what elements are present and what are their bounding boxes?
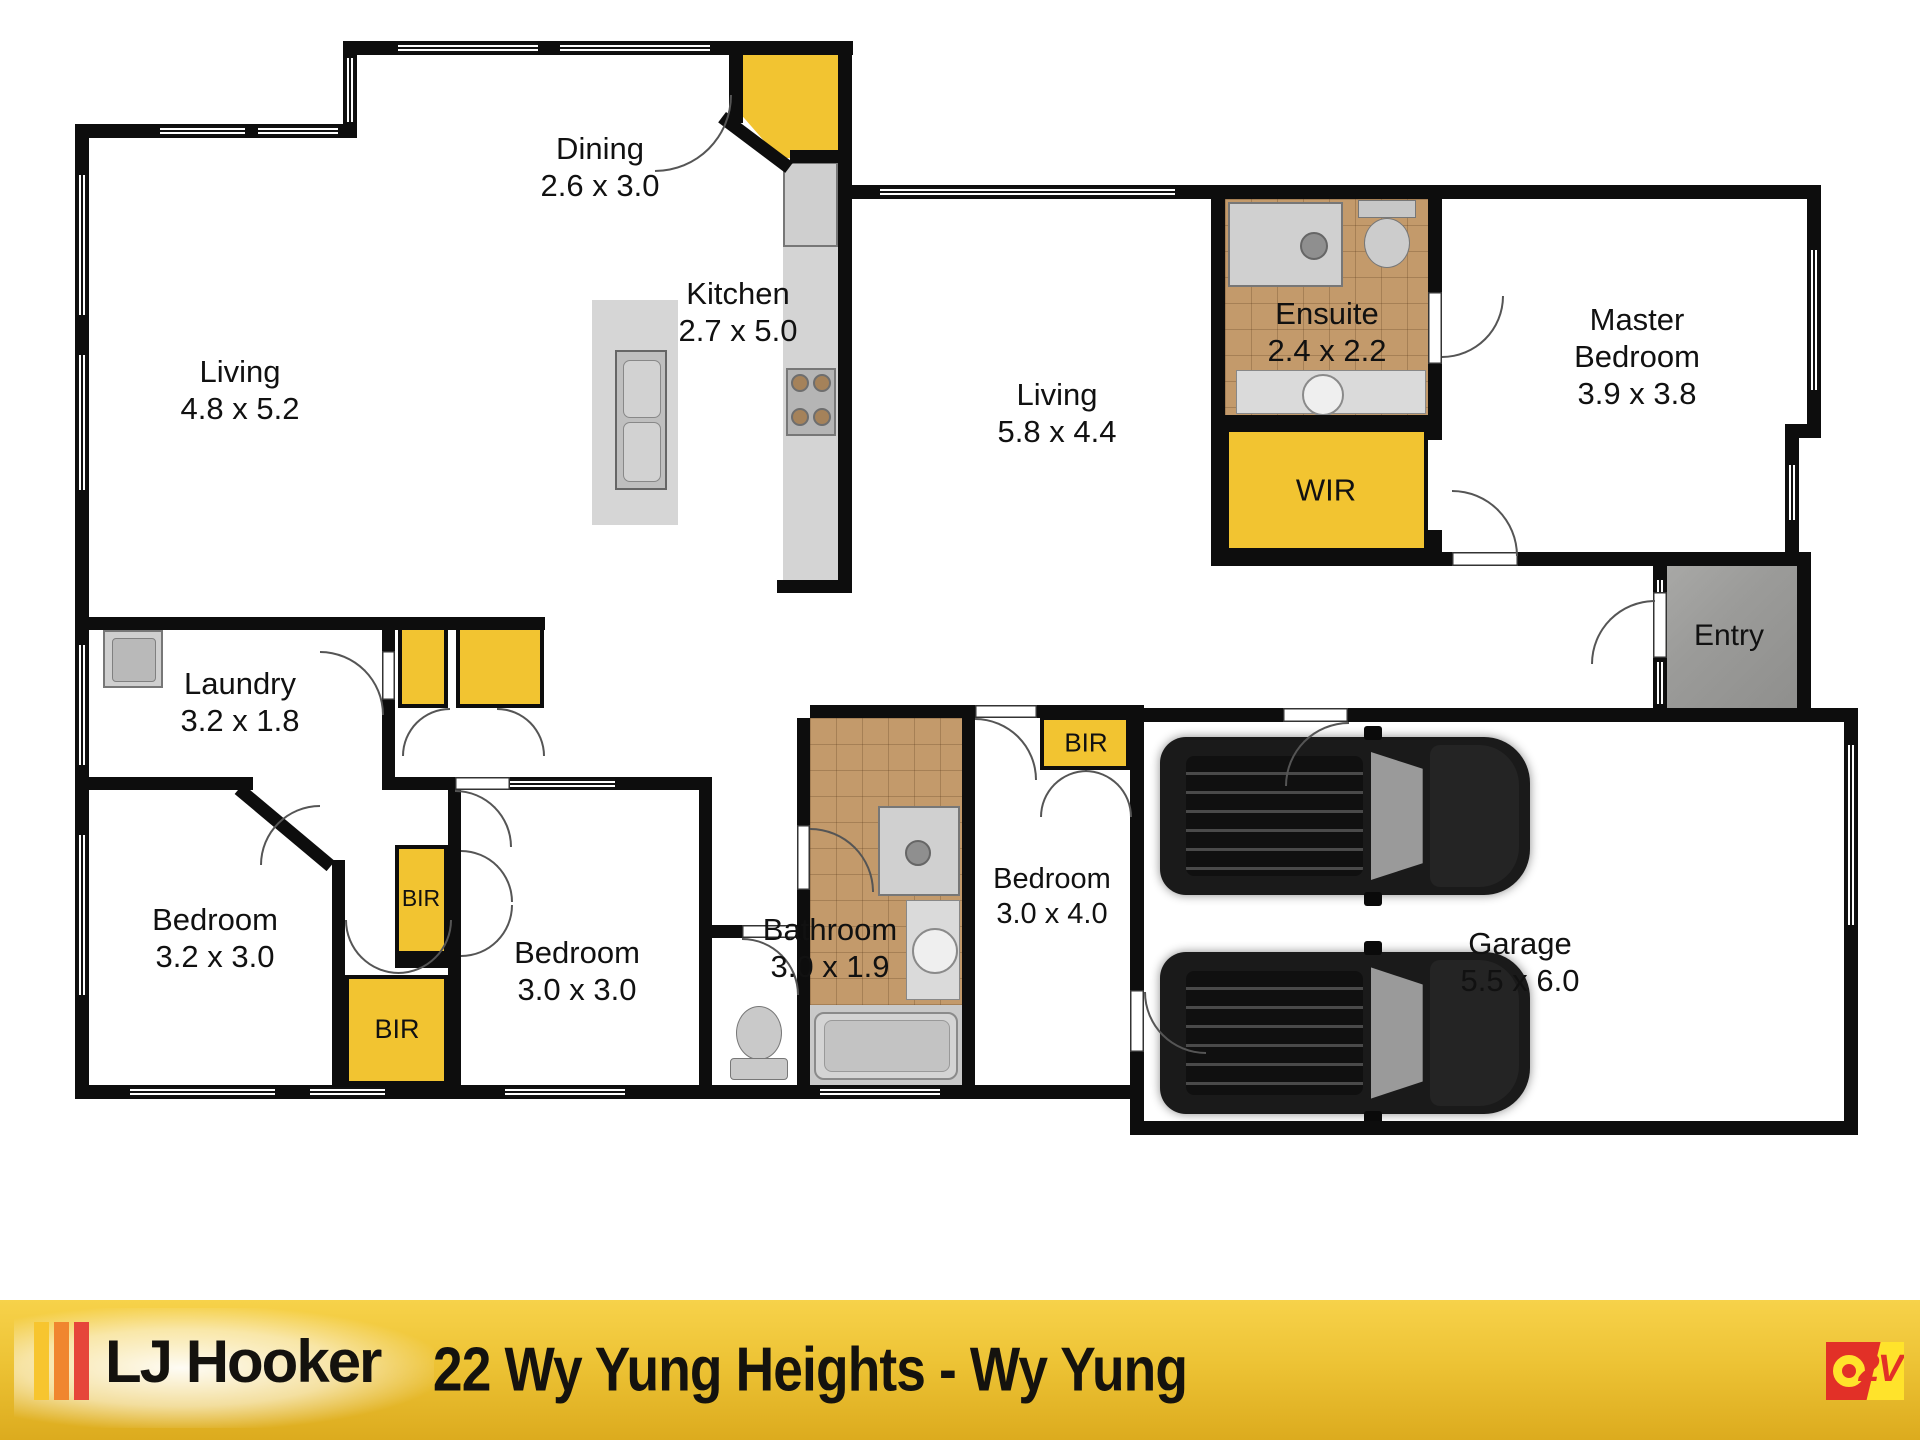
burner-icon <box>813 374 831 392</box>
door-jamb <box>1428 292 1442 364</box>
floor-plan: Living 4.8 x 5.2 Dining 2.6 x 3.0 Kitche… <box>0 0 1920 1300</box>
window-strip-icon <box>1846 745 1856 925</box>
room-label-dining: Dining 2.6 x 3.0 <box>541 130 660 204</box>
side-mirror <box>1364 726 1383 740</box>
wall <box>332 860 345 975</box>
bar-yellow <box>34 1322 49 1400</box>
fridge-icon <box>783 162 838 247</box>
wall <box>1211 185 1225 566</box>
wall <box>75 777 253 790</box>
footer-banner: LJ Hooker 22 Wy Yung Heights - Wy Yung 2… <box>0 1300 1920 1440</box>
windshield <box>1371 962 1423 1105</box>
door-swing-arc-icon <box>1452 490 1518 556</box>
window-strip-icon <box>160 126 245 136</box>
wall <box>1142 708 1858 722</box>
door-jamb <box>1130 990 1144 1052</box>
wall <box>382 617 395 651</box>
bar-orange <box>54 1322 69 1400</box>
laundry-trough-bowl <box>112 638 156 682</box>
door-jamb <box>1283 708 1348 722</box>
door-swing-arc-icon <box>1085 770 1132 817</box>
sink-bowl-icon <box>623 422 661 482</box>
window-strip-icon <box>505 779 615 789</box>
room-label-entry: Entry <box>1694 618 1764 654</box>
o2v-logo: 2V <box>1826 1342 1904 1400</box>
roof-rack <box>1186 971 1364 1094</box>
window-strip-icon <box>258 126 338 136</box>
door-swing-arc-icon <box>1144 992 1206 1054</box>
door-swing-arc-icon <box>497 708 545 756</box>
brand-name: LJ Hooker <box>105 1327 380 1396</box>
sink-bowl-icon <box>623 360 661 418</box>
toilet-tank-icon <box>1358 200 1416 218</box>
door-swing-arc-icon <box>455 790 512 847</box>
hood <box>1430 745 1519 887</box>
toilet-base-icon <box>730 1058 788 1080</box>
wall <box>332 975 345 1085</box>
room-label-garage: Garage 5.5 x 6.0 <box>1461 925 1580 999</box>
window-strip-icon <box>505 1087 625 1097</box>
door-jamb <box>455 777 510 790</box>
window-strip-icon <box>77 645 87 765</box>
shower-head-icon <box>905 840 931 866</box>
wall <box>1037 705 1142 718</box>
door-swing-arc-icon <box>1591 600 1655 664</box>
wall <box>729 41 743 123</box>
door-jamb <box>975 705 1037 718</box>
window-strip-icon <box>398 43 538 53</box>
burner-icon <box>791 408 809 426</box>
window-strip-icon <box>345 58 355 122</box>
wall <box>712 925 742 938</box>
windshield <box>1371 746 1423 885</box>
wall <box>1797 566 1811 722</box>
burner-icon <box>813 408 831 426</box>
wall <box>777 580 852 593</box>
window-strip-icon <box>1655 662 1665 704</box>
door-swing-arc-icon <box>461 850 513 902</box>
room-label-master-bedroom: Master Bedroom 3.9 x 3.8 <box>1574 301 1700 413</box>
floorplan-screenshot: Living 4.8 x 5.2 Dining 2.6 x 3.0 Kitche… <box>0 0 1920 1440</box>
wall <box>790 150 852 163</box>
linen-cupboard <box>398 622 448 708</box>
wall <box>810 705 975 718</box>
vanity-basin-icon <box>1302 374 1344 416</box>
bathtub-basin <box>824 1020 950 1072</box>
door-jamb <box>1653 592 1667 658</box>
wall <box>962 705 975 1085</box>
wall <box>1130 1121 1858 1135</box>
room-label-bedroom1: Bedroom 3.2 x 3.0 <box>152 901 278 975</box>
toilet-icon <box>736 1006 782 1060</box>
door-swing-arc-icon <box>655 95 732 172</box>
window-strip-icon <box>77 355 87 490</box>
wall <box>1211 415 1428 428</box>
toilet-icon <box>1364 218 1410 268</box>
wall <box>1225 185 1811 199</box>
closet-label-bir: BIR <box>1064 727 1107 758</box>
window-strip-icon <box>560 43 710 53</box>
ljhooker-logo: LJ Hooker <box>34 1322 380 1400</box>
vanity-basin-icon <box>912 928 958 974</box>
wall <box>75 617 545 630</box>
door-swing-arc-icon <box>1442 296 1504 358</box>
wall <box>699 777 712 1085</box>
wall <box>797 718 810 825</box>
room-label-ensuite: Ensuite 2.4 x 2.2 <box>1268 295 1387 369</box>
wall <box>448 955 461 1085</box>
ljhooker-bars-icon <box>34 1322 89 1400</box>
window-strip-icon <box>1787 465 1797 520</box>
room-label-bedroom2: Bedroom 3.0 x 3.0 <box>514 934 640 1008</box>
linen-cupboard <box>456 622 544 708</box>
room-label-bathroom: Bathroom 3.0 x 1.9 <box>763 911 897 985</box>
window-strip-icon <box>77 835 87 995</box>
door-swing-arc-icon <box>402 708 450 756</box>
side-mirror <box>1364 941 1383 956</box>
door-swing-arc-icon <box>320 651 384 715</box>
room-label-wir: WIR <box>1296 471 1356 508</box>
room-label-living1: Living 4.8 x 5.2 <box>181 353 300 427</box>
wall <box>1130 1085 1144 1135</box>
room-label-kitchen: Kitchen 2.7 x 5.0 <box>679 275 798 349</box>
room-label-living2: Living 5.8 x 4.4 <box>998 376 1117 450</box>
window-strip-icon <box>880 187 1175 197</box>
bar-red <box>74 1322 89 1400</box>
window-strip-icon <box>130 1087 275 1097</box>
wall <box>838 41 852 593</box>
wall <box>1785 424 1821 438</box>
door-swing-arc-icon <box>461 905 513 957</box>
property-address: 22 Wy Yung Heights - Wy Yung <box>433 1335 1187 1406</box>
window-strip-icon <box>1809 250 1819 390</box>
room-label-bedroom4: Bedroom 3.0 x 4.0 <box>993 862 1111 932</box>
door-swing-arc-icon <box>1285 722 1349 786</box>
closet-label-bir: BIR <box>374 1013 419 1045</box>
closet-label-bir: BIR <box>402 885 440 913</box>
window-strip-icon <box>820 1087 940 1097</box>
side-mirror <box>1364 892 1383 906</box>
window-strip-icon <box>310 1087 385 1097</box>
burner-icon <box>791 374 809 392</box>
door-jamb <box>382 651 395 700</box>
room-label-laundry: Laundry 3.2 x 1.8 <box>181 665 300 739</box>
shower-head-icon <box>1300 232 1328 260</box>
door-swing-arc-icon <box>975 718 1037 780</box>
door-swing-arc-icon <box>345 920 399 974</box>
o2v-2v-text: 2V <box>1859 1348 1901 1391</box>
door-jamb <box>797 825 810 890</box>
door-swing-arc-icon <box>1040 770 1087 817</box>
window-strip-icon <box>77 175 87 315</box>
